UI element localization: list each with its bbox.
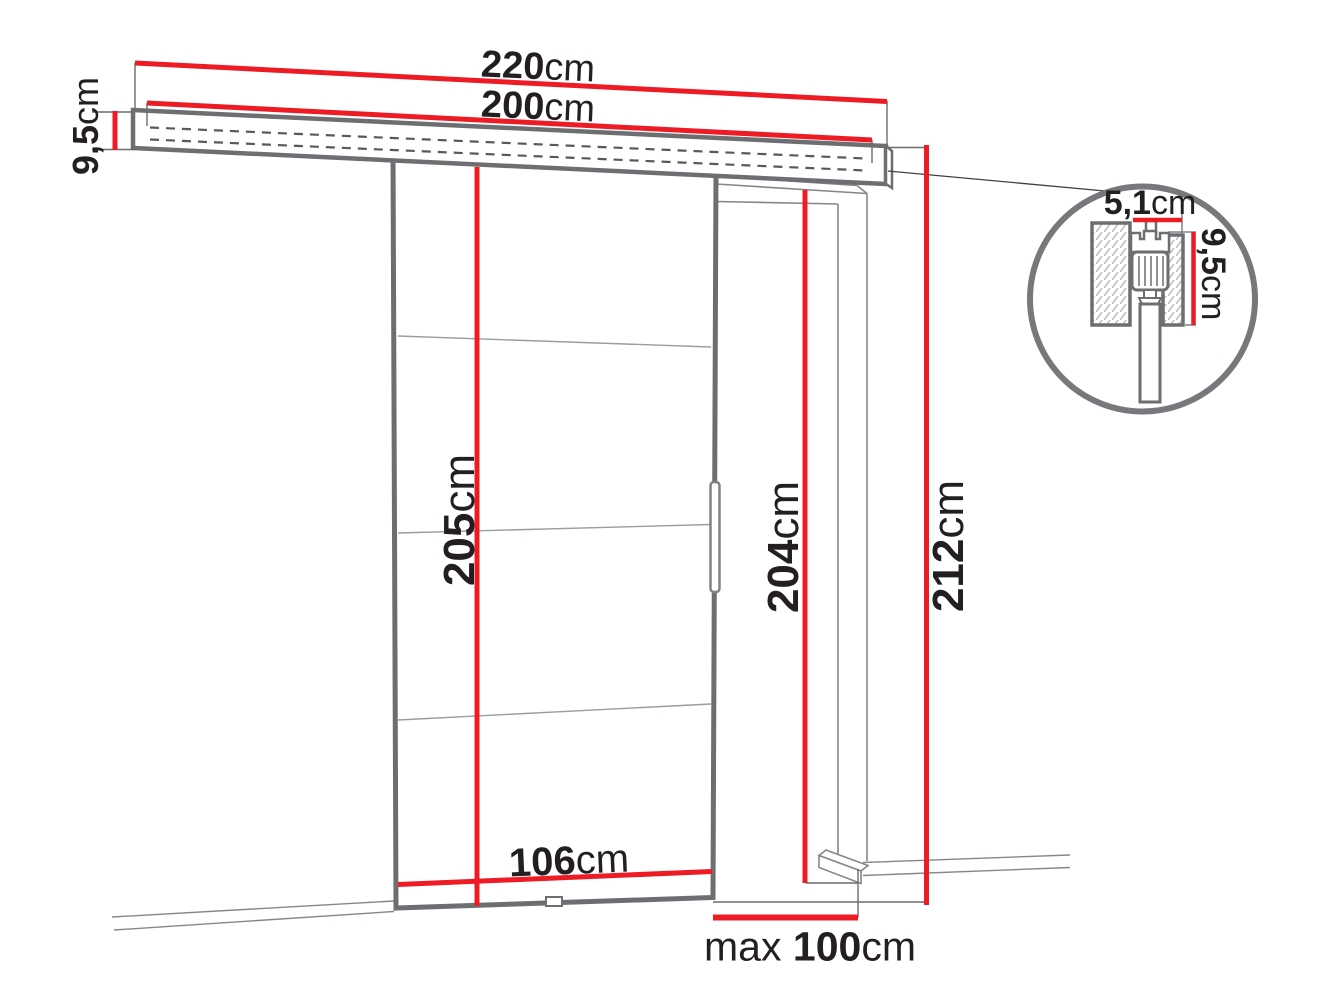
dim-label-detail-rail-depth: 5,1cm: [1104, 186, 1197, 220]
dim-label-track-width: 200cm: [480, 86, 596, 129]
detail-door-section: [1140, 304, 1160, 402]
dim-value: 9,5: [1194, 228, 1232, 275]
dim-value: 220: [480, 44, 545, 89]
dim-prefix: max: [704, 924, 793, 970]
dim-unit: cm: [543, 46, 595, 90]
dim-value: 212: [924, 539, 973, 612]
dim-value: 5,1: [1104, 184, 1151, 222]
dim-label-detail-rail-height: 9,5cm: [1196, 228, 1230, 321]
dim-unit: cm: [759, 481, 808, 540]
threshold-sill: [819, 850, 868, 884]
door-handle: [711, 482, 720, 592]
detail-leader-line: [888, 171, 1105, 191]
diagram-stage: 220cm 200cm 9,5cm 205cm 204cm 212cm 106c…: [0, 0, 1336, 1002]
floor-skirting-left: [112, 901, 394, 930]
dim-value: 106: [508, 839, 577, 886]
dim-label-total-height: 212cm: [927, 480, 971, 612]
dim-label-max-opening-width: max 100cm: [704, 927, 916, 968]
dim-unit: cm: [861, 924, 916, 970]
dim-unit: cm: [435, 454, 484, 513]
dim-unit: cm: [924, 480, 973, 539]
dim-value: 100: [793, 924, 861, 970]
floor-skirting-right: [863, 855, 1070, 876]
dim-label-opening-height: 204cm: [762, 481, 806, 613]
dim-unit: cm: [1151, 184, 1196, 222]
floor-guide: [546, 897, 562, 906]
dim-label-door-height: 205cm: [438, 454, 482, 586]
dim-unit: cm: [65, 77, 106, 125]
diagram-canvas: [0, 0, 1336, 1002]
dim-value: 200: [480, 84, 545, 129]
dim-unit: cm: [543, 86, 595, 130]
dim-value: 205: [435, 513, 484, 586]
detail-wall-block: [1092, 223, 1130, 325]
dim-label-rail-total-width: 220cm: [480, 46, 596, 89]
dim-unit: cm: [1194, 275, 1232, 320]
dim-unit: cm: [575, 837, 630, 883]
dim-label-door-width: 106cm: [508, 839, 630, 884]
rail-end-face: [886, 146, 892, 188]
dim-value: 9,5: [65, 125, 106, 175]
dim-label-rail-height: 9,5cm: [68, 77, 104, 175]
dim-value: 204: [759, 540, 808, 613]
